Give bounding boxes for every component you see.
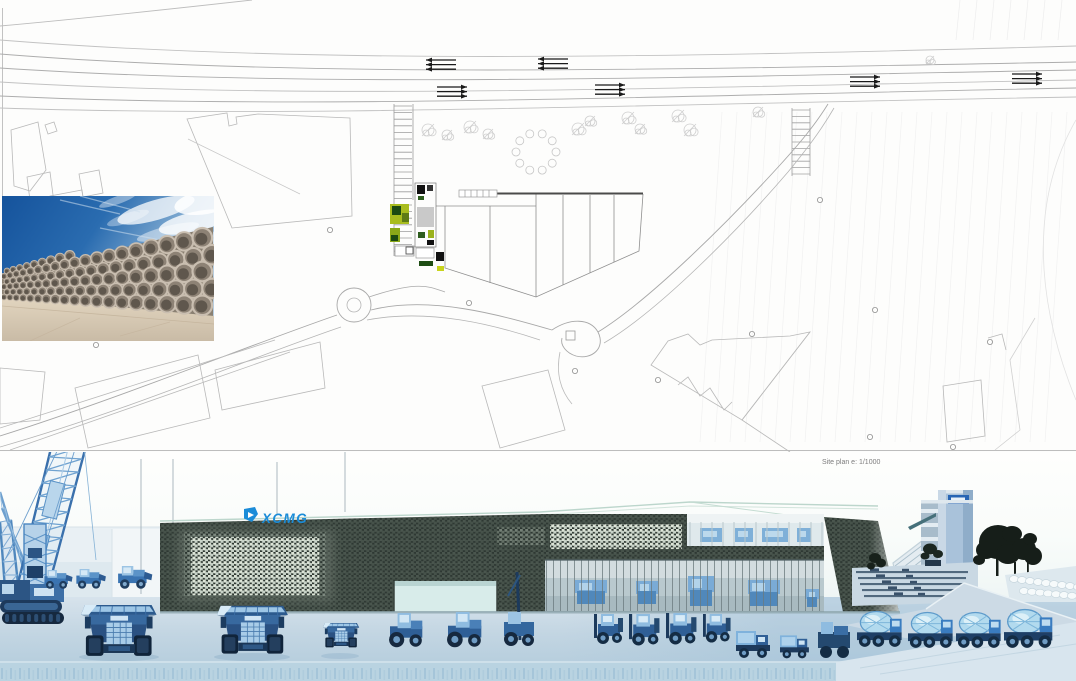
svg-text:Site plan e: 1/1000: Site plan e: 1/1000 xyxy=(822,459,880,466)
svg-text:XCMG: XCMG xyxy=(261,511,308,526)
